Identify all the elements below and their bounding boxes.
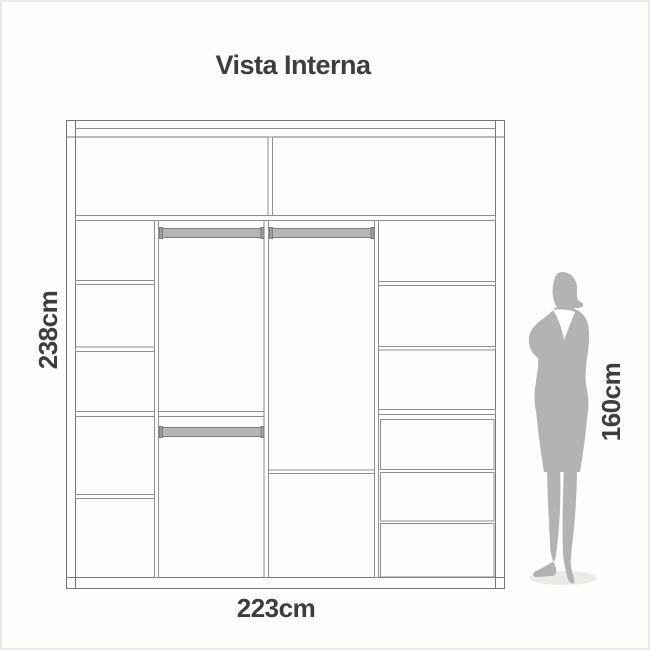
silhouette-torso bbox=[529, 306, 589, 412]
silhouette-front-leg bbox=[533, 464, 560, 577]
drawers bbox=[381, 420, 495, 578]
shelf bbox=[76, 412, 155, 417]
hanging-rods bbox=[160, 228, 375, 438]
silhouette-head bbox=[553, 272, 584, 308]
silhouette-back-leg bbox=[563, 464, 577, 584]
shelf bbox=[159, 412, 265, 417]
shelf bbox=[76, 281, 155, 285]
rod-end-cap bbox=[160, 228, 163, 239]
shelf bbox=[76, 495, 155, 499]
shelf bbox=[76, 347, 155, 352]
shelf bbox=[379, 410, 496, 415]
divider-left bbox=[155, 221, 159, 578]
shelf bbox=[269, 470, 375, 474]
rod-end-cap bbox=[261, 228, 264, 239]
rod-bar bbox=[162, 428, 262, 437]
top-section-divider bbox=[268, 137, 273, 216]
width-dimension-label: 223cm bbox=[201, 593, 351, 621]
diagram-canvas: Vista Interna bbox=[0, 0, 650, 650]
right-column-shelves bbox=[379, 282, 496, 415]
drawer-front bbox=[381, 420, 495, 470]
rod-end-cap bbox=[371, 228, 374, 239]
rod-end-cap bbox=[270, 228, 273, 239]
rod-bar bbox=[162, 229, 262, 238]
person-silhouette bbox=[520, 266, 606, 588]
hanging-rod bbox=[160, 427, 265, 438]
hanging-rod bbox=[270, 228, 375, 239]
hanging-rod bbox=[160, 228, 265, 239]
person-height-label: 160cm bbox=[596, 327, 626, 477]
top-shelf-section bbox=[76, 137, 496, 221]
divider-center bbox=[264, 221, 269, 578]
top-section-bottom-shelf bbox=[76, 216, 496, 221]
rod-bar bbox=[272, 229, 372, 238]
left-column-shelves bbox=[76, 281, 155, 499]
left-side-panel bbox=[67, 121, 76, 589]
drawer-front bbox=[381, 524, 495, 578]
shelf bbox=[379, 282, 496, 286]
column-dividers bbox=[155, 221, 379, 578]
silhouette-skirt bbox=[536, 410, 588, 472]
shelf bbox=[379, 347, 496, 351]
center-shelves bbox=[159, 412, 375, 474]
wardrobe-frame bbox=[67, 121, 505, 589]
height-dimension-label: 238cm bbox=[33, 255, 63, 405]
rod-end-cap bbox=[261, 427, 264, 438]
right-side-panel bbox=[496, 121, 505, 589]
divider-right bbox=[375, 221, 379, 578]
rod-end-cap bbox=[160, 427, 163, 438]
bottom-rail bbox=[67, 578, 505, 589]
drawer-front bbox=[381, 473, 495, 522]
